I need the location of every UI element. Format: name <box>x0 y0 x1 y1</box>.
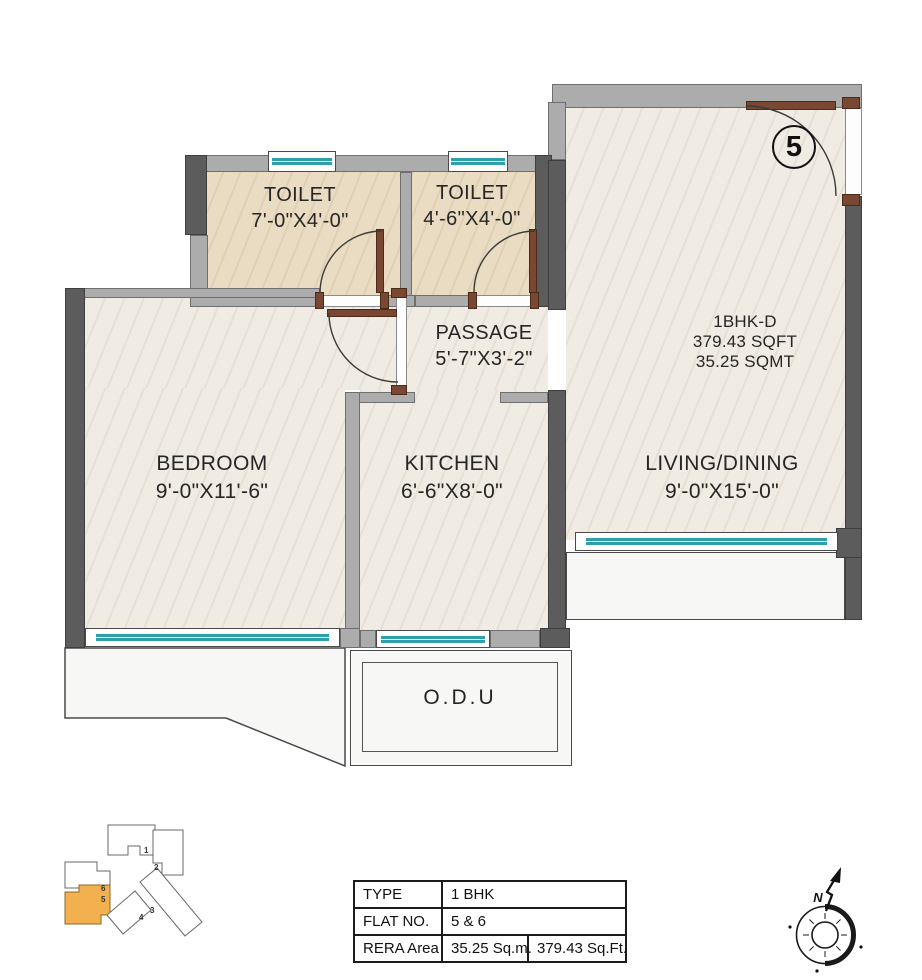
compass-dot-w <box>788 925 791 928</box>
passage-dims-label: 5'-7"X3'-2" <box>435 348 532 371</box>
table-value-type: 1 BHK <box>443 882 625 909</box>
bedroom-name-label: BEDROOM <box>156 452 267 476</box>
table-label-flatno: FLAT NO. <box>355 909 443 936</box>
compass-hub <box>812 922 838 948</box>
key-plan-unit-3 <box>140 868 202 936</box>
kitchen-dims-label: 6'-6"X8'-0" <box>401 480 503 504</box>
unit-type-label: 1BHK-D <box>713 312 777 332</box>
unit-area-sqmt-label: 35.25 SQMT <box>696 352 794 372</box>
key-plan-label-5: 5 <box>101 895 106 904</box>
unit-area-sqft-label: 379.43 SQFT <box>693 332 797 352</box>
toilet2-name-label: TOILET <box>436 182 508 205</box>
toilet2-dims-label: 4'-6"X4'-0" <box>423 208 520 231</box>
compass-dot-s <box>815 969 818 972</box>
floor-plan-sheet: 5 TOILET 7'-0"X4'-0" TOILET 4'-6"X4'-0" … <box>0 0 922 980</box>
table-label-type: TYPE <box>355 882 443 909</box>
unit-info-table: TYPE 1 BHK FLAT NO. 5 & 6 RERA Area 35.2… <box>353 880 627 963</box>
compass-north-label: N <box>813 890 823 905</box>
unit-number-badge: 5 <box>772 125 816 169</box>
bedroom-door-arc <box>329 313 398 382</box>
compass-dot-e <box>859 945 862 948</box>
bedroom-dims-label: 9'-0"X11'-6" <box>156 480 269 504</box>
toilet2-door-arc <box>474 231 535 292</box>
table-value-rera-sqft: 379.43 Sq.Ft. <box>529 936 625 961</box>
compass: N <box>780 855 910 980</box>
living-name-label: LIVING/DINING <box>645 452 798 476</box>
key-plan: 1 2 3 4 5 6 <box>50 812 270 980</box>
passage-name-label: PASSAGE <box>436 322 533 345</box>
living-dims-label: 9'-0"X15'-0" <box>665 480 779 504</box>
key-plan-label-4: 4 <box>139 913 144 922</box>
odu-label: O.D.U <box>423 686 496 710</box>
compass-north-arrowhead <box>830 867 841 883</box>
kitchen-name-label: KITCHEN <box>405 452 500 476</box>
toilet1-dims-label: 7'-0"X4'-0" <box>251 210 348 233</box>
key-plan-unit-4 <box>107 891 151 934</box>
toilet1-door-arc <box>320 231 382 293</box>
toilet1-name-label: TOILET <box>264 184 336 207</box>
table-label-rera: RERA Area <box>355 936 443 961</box>
key-plan-label-2: 2 <box>154 863 159 872</box>
key-plan-label-6: 6 <box>101 884 106 893</box>
key-plan-label-1: 1 <box>144 846 149 855</box>
table-value-flatno: 5 & 6 <box>443 909 625 936</box>
key-plan-label-3: 3 <box>150 906 155 915</box>
table-value-rera-sqm: 35.25 Sq.m. <box>443 936 529 961</box>
